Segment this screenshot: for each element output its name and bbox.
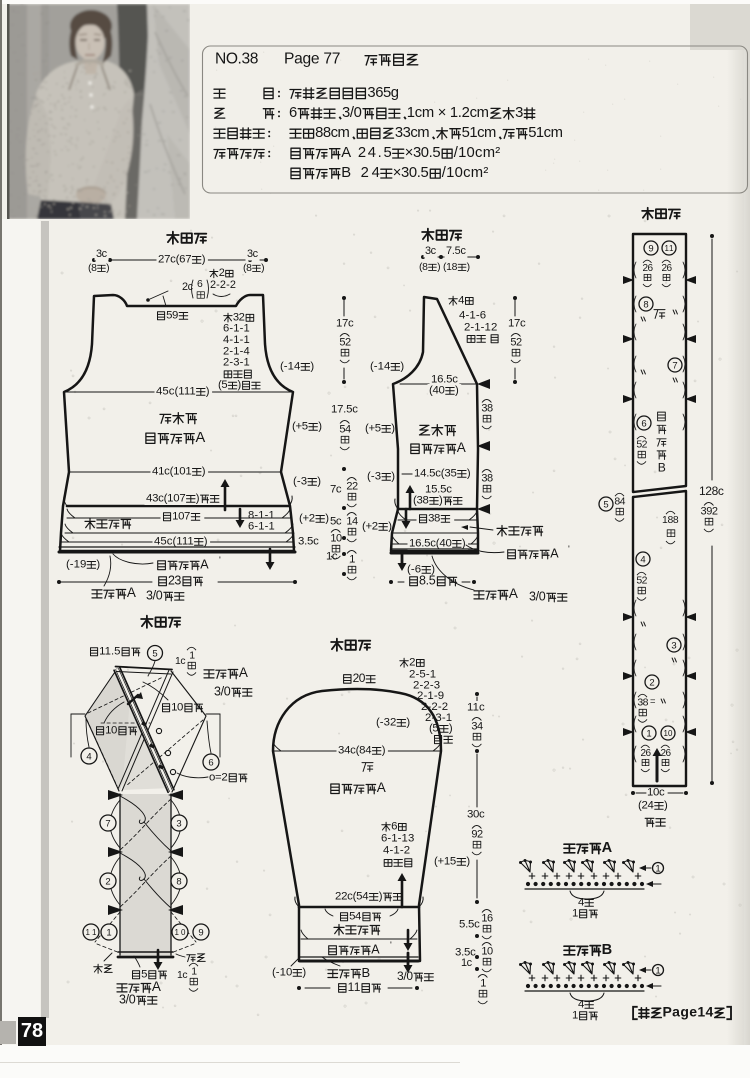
svg-text:43c(107: 43c(107 — [146, 493, 186, 505]
svg-text:): ) — [462, 538, 466, 550]
svg-text:5.5c: 5.5c — [459, 919, 480, 931]
svg-text:1: 1 — [191, 966, 197, 978]
svg-text:(-14: (-14 — [370, 361, 390, 373]
svg-text:(-3: (-3 — [293, 476, 307, 488]
svg-text:): ) — [437, 262, 440, 273]
svg-text:7: 7 — [105, 818, 110, 829]
svg-text:2-1-12: 2-1-12 — [464, 322, 497, 334]
svg-text:3/0: 3/0 — [397, 969, 413, 983]
svg-text:NO.38: NO.38 — [215, 51, 258, 68]
svg-text:45c(111: 45c(111 — [156, 386, 196, 398]
svg-text:/10cm²: /10cm² — [442, 165, 489, 181]
svg-text:3: 3 — [515, 105, 523, 121]
svg-text:1: 1 — [655, 863, 660, 874]
svg-text:(8: (8 — [243, 263, 252, 274]
svg-text:1: 1 — [572, 1010, 578, 1022]
svg-text:92: 92 — [471, 828, 483, 840]
svg-text:3/0: 3/0 — [146, 588, 163, 602]
svg-text:10: 10 — [175, 928, 187, 937]
svg-text:3/0: 3/0 — [529, 589, 546, 603]
svg-text:52: 52 — [636, 575, 647, 587]
svg-text:52: 52 — [636, 439, 647, 451]
svg-text:): ) — [391, 471, 395, 483]
svg-text:16.5c(40: 16.5c(40 — [409, 538, 452, 550]
svg-text:o=2: o=2 — [209, 772, 228, 784]
svg-text:8: 8 — [176, 876, 181, 887]
svg-text:59: 59 — [166, 310, 178, 322]
svg-text:(+2: (+2 — [362, 521, 378, 533]
svg-text:10: 10 — [481, 945, 493, 957]
svg-text:B: B — [658, 460, 666, 474]
svg-text:17.5c: 17.5c — [331, 404, 358, 416]
svg-text:4: 4 — [86, 751, 91, 762]
svg-text:(+15: (+15 — [434, 856, 456, 868]
svg-text:30c: 30c — [467, 809, 485, 821]
svg-text:5: 5 — [152, 648, 157, 659]
svg-text:6: 6 — [289, 105, 297, 121]
svg-text:128c: 128c — [699, 484, 724, 498]
svg-text:3/0: 3/0 — [214, 684, 231, 698]
svg-text:(18: (18 — [443, 262, 458, 273]
svg-text:365g: 365g — [367, 85, 399, 101]
svg-text:16: 16 — [481, 912, 493, 924]
svg-text:1: 1 — [572, 908, 578, 920]
svg-text:23: 23 — [168, 573, 181, 587]
svg-text:11.5: 11.5 — [99, 646, 120, 658]
svg-text:): ) — [261, 263, 264, 274]
svg-text:26: 26 — [641, 748, 652, 759]
svg-text:): ) — [439, 495, 443, 507]
svg-text:3.5c: 3.5c — [298, 536, 319, 548]
svg-text:A: A — [152, 979, 161, 994]
svg-text:4: 4 — [640, 554, 645, 565]
svg-text:A: A — [371, 942, 380, 956]
svg-text:52: 52 — [510, 336, 522, 348]
svg-text:×30.5: ×30.5 — [405, 145, 441, 161]
svg-text:(+2: (+2 — [299, 513, 315, 525]
svg-text:26: 26 — [661, 748, 672, 759]
svg-text:): ) — [400, 361, 404, 373]
svg-text:): ) — [206, 386, 210, 398]
svg-text:): ) — [388, 521, 392, 533]
svg-text:(-10: (-10 — [272, 967, 292, 979]
svg-text:1cm × 1.2cm: 1cm × 1.2cm — [407, 105, 489, 121]
svg-text:': ' — [219, 554, 221, 565]
svg-text:3: 3 — [176, 818, 181, 829]
svg-text:=: = — [650, 695, 656, 706]
svg-text:45c(111: 45c(111 — [154, 536, 194, 548]
svg-text:9: 9 — [648, 243, 653, 254]
svg-text:38: 38 — [428, 513, 440, 525]
svg-text:): ) — [325, 513, 329, 525]
svg-text:A: A — [200, 557, 209, 571]
svg-text:51cm: 51cm — [462, 125, 497, 141]
svg-text:4-1-2: 4-1-2 — [383, 845, 410, 857]
svg-text:1: 1 — [655, 965, 660, 976]
svg-text:17c: 17c — [336, 318, 354, 330]
svg-text:): ) — [302, 967, 306, 979]
svg-text:3c: 3c — [96, 248, 108, 260]
svg-text:38: 38 — [481, 402, 493, 414]
svg-text:3: 3 — [671, 640, 676, 651]
svg-text:3/0: 3/0 — [342, 105, 362, 121]
svg-text:22c(54: 22c(54 — [335, 891, 369, 903]
svg-text:10: 10 — [330, 532, 342, 544]
svg-text:9: 9 — [198, 927, 203, 938]
svg-text:): ) — [202, 466, 206, 478]
svg-text:32: 32 — [233, 311, 245, 323]
svg-text:A: A — [196, 430, 206, 446]
svg-text:2-1-4: 2-1-4 — [223, 345, 250, 357]
svg-text:6: 6 — [391, 821, 397, 833]
svg-text:): ) — [382, 745, 386, 757]
svg-text:(-19: (-19 — [66, 559, 86, 571]
svg-text:2: 2 — [105, 876, 110, 887]
svg-text:34: 34 — [471, 720, 483, 732]
svg-text:1c: 1c — [175, 656, 186, 667]
svg-text:A: A — [377, 780, 386, 795]
svg-text:392: 392 — [701, 505, 719, 517]
svg-text:B: B — [602, 942, 613, 958]
svg-text:): ) — [317, 476, 321, 488]
svg-text:(-3: (-3 — [367, 471, 381, 483]
svg-text:): ) — [96, 559, 100, 571]
svg-text:38: 38 — [637, 697, 648, 709]
svg-text:38: 38 — [481, 472, 493, 484]
svg-text:4-1-1: 4-1-1 — [223, 334, 250, 346]
svg-text:4: 4 — [578, 999, 584, 1011]
svg-text:1: 1 — [646, 728, 651, 739]
svg-text:10: 10 — [664, 729, 674, 738]
svg-text:1c: 1c — [461, 957, 473, 969]
svg-text:5: 5 — [603, 499, 608, 510]
svg-text:8: 8 — [643, 299, 648, 310]
svg-text:/10cm²: /10cm² — [454, 145, 501, 161]
svg-text:6: 6 — [197, 279, 203, 290]
svg-text:54: 54 — [339, 423, 351, 435]
svg-text:33cm: 33cm — [395, 125, 430, 141]
svg-text:11: 11 — [665, 244, 675, 253]
svg-text:): ) — [467, 262, 470, 273]
svg-text:A: A — [127, 585, 136, 600]
svg-text:(+5: (+5 — [292, 421, 308, 433]
svg-text:17c: 17c — [508, 318, 526, 330]
svg-text:): ) — [310, 361, 314, 373]
svg-text:): ) — [449, 723, 453, 735]
svg-text:5c: 5c — [330, 516, 342, 528]
svg-text:A: A — [550, 546, 559, 560]
svg-text:): ) — [106, 263, 109, 274]
svg-text:4: 4 — [458, 295, 464, 307]
svg-text:': ' — [390, 939, 392, 950]
svg-text:6: 6 — [208, 757, 213, 768]
svg-text:52: 52 — [339, 336, 351, 348]
svg-text:(8: (8 — [88, 263, 97, 274]
svg-text:26: 26 — [643, 263, 654, 274]
svg-text:B: B — [362, 965, 371, 980]
svg-text:(+5: (+5 — [365, 423, 381, 435]
svg-text:2-3-1: 2-3-1 — [223, 357, 250, 369]
svg-text:4-1-6: 4-1-6 — [459, 310, 486, 322]
svg-text:11: 11 — [348, 980, 361, 994]
svg-text:84: 84 — [614, 496, 625, 508]
svg-text:1: 1 — [349, 553, 355, 565]
svg-text:): ) — [238, 379, 242, 391]
svg-text:1c: 1c — [177, 970, 188, 981]
svg-text:54: 54 — [349, 911, 361, 923]
svg-text:41c(101: 41c(101 — [152, 466, 192, 478]
svg-text:): ) — [406, 717, 410, 729]
svg-text:): ) — [467, 468, 471, 480]
svg-text:2: 2 — [409, 657, 415, 669]
svg-text:188: 188 — [662, 515, 679, 526]
svg-text:34c(84: 34c(84 — [338, 745, 372, 757]
svg-text:27c(67: 27c(67 — [158, 254, 192, 266]
svg-text:(-14: (-14 — [280, 361, 300, 373]
svg-text:Page 77: Page 77 — [284, 51, 340, 68]
svg-text:22: 22 — [346, 480, 358, 492]
svg-text:6-1-13: 6-1-13 — [381, 833, 414, 845]
svg-text:): ) — [196, 493, 200, 505]
svg-text:11: 11 — [86, 928, 98, 937]
svg-text:(40: (40 — [429, 385, 445, 397]
svg-text:): ) — [466, 856, 470, 868]
svg-text:): ) — [379, 891, 383, 903]
svg-text:Page14: Page14 — [663, 1004, 714, 1020]
svg-text:5: 5 — [141, 969, 147, 981]
svg-text:(-32: (-32 — [376, 717, 396, 729]
svg-text:7c: 7c — [330, 484, 342, 496]
svg-text:3c: 3c — [425, 245, 437, 257]
svg-text:): ) — [204, 536, 208, 548]
svg-text:B 24: B 24 — [341, 165, 380, 181]
svg-text:4: 4 — [578, 897, 584, 909]
svg-text:7: 7 — [672, 360, 677, 371]
svg-text:A: A — [239, 665, 248, 680]
svg-text:14.5c(35: 14.5c(35 — [414, 468, 457, 480]
svg-text:(38: (38 — [413, 495, 429, 507]
svg-text:): ) — [455, 385, 459, 397]
svg-text:(5: (5 — [218, 379, 228, 391]
svg-text:A: A — [602, 840, 613, 856]
svg-text:): ) — [664, 800, 668, 812]
svg-text:(24: (24 — [638, 800, 654, 812]
svg-text:88cm: 88cm — [315, 125, 350, 141]
svg-text:107: 107 — [172, 511, 190, 523]
svg-text:A: A — [457, 440, 466, 455]
svg-text:A: A — [509, 586, 518, 601]
svg-text:): ) — [391, 423, 395, 435]
svg-text:2: 2 — [649, 677, 654, 688]
svg-text:): ) — [202, 254, 206, 266]
svg-text:6-1-1: 6-1-1 — [248, 520, 275, 532]
svg-text:10: 10 — [171, 702, 183, 714]
svg-text:8.5: 8.5 — [419, 573, 436, 587]
svg-text:10: 10 — [105, 725, 117, 737]
svg-text:7.5c: 7.5c — [446, 245, 466, 257]
svg-text:2: 2 — [219, 267, 225, 279]
svg-text:51cm: 51cm — [528, 125, 563, 141]
svg-text:3/0: 3/0 — [119, 992, 136, 1006]
svg-text:1: 1 — [106, 927, 111, 938]
svg-text:': ' — [568, 543, 570, 554]
svg-text:20: 20 — [353, 671, 366, 685]
svg-text:10c: 10c — [647, 787, 665, 799]
svg-text:26: 26 — [662, 263, 673, 274]
svg-text:6: 6 — [641, 418, 646, 429]
svg-text:1: 1 — [189, 650, 195, 662]
svg-text:2-2-2: 2-2-2 — [210, 279, 236, 291]
svg-text:3c: 3c — [247, 248, 259, 260]
svg-text:A 24.5: A 24.5 — [341, 145, 391, 161]
svg-text:1c: 1c — [326, 551, 338, 563]
svg-text:6-1-1: 6-1-1 — [223, 323, 250, 335]
svg-text:(8: (8 — [419, 262, 428, 273]
svg-text:1: 1 — [480, 977, 486, 989]
svg-text:14: 14 — [346, 515, 358, 527]
svg-text:11c: 11c — [467, 702, 485, 714]
svg-text:×30.5: ×30.5 — [393, 165, 429, 181]
svg-text:): ) — [318, 421, 322, 433]
